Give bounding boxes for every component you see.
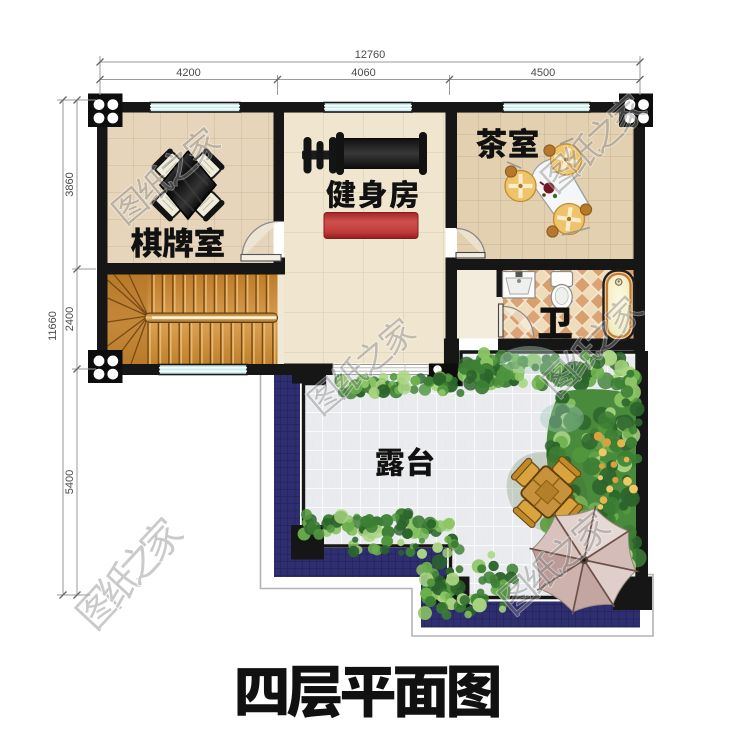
svg-text:3860: 3860 xyxy=(64,172,76,196)
svg-text:4060: 4060 xyxy=(351,67,375,79)
svg-text:11660: 11660 xyxy=(47,311,59,341)
svg-text:2400: 2400 xyxy=(64,307,76,331)
svg-text:12760: 12760 xyxy=(355,49,386,61)
svg-text:5400: 5400 xyxy=(64,470,76,494)
svg-text:4200: 4200 xyxy=(176,67,200,79)
svg-text:4500: 4500 xyxy=(531,67,555,79)
